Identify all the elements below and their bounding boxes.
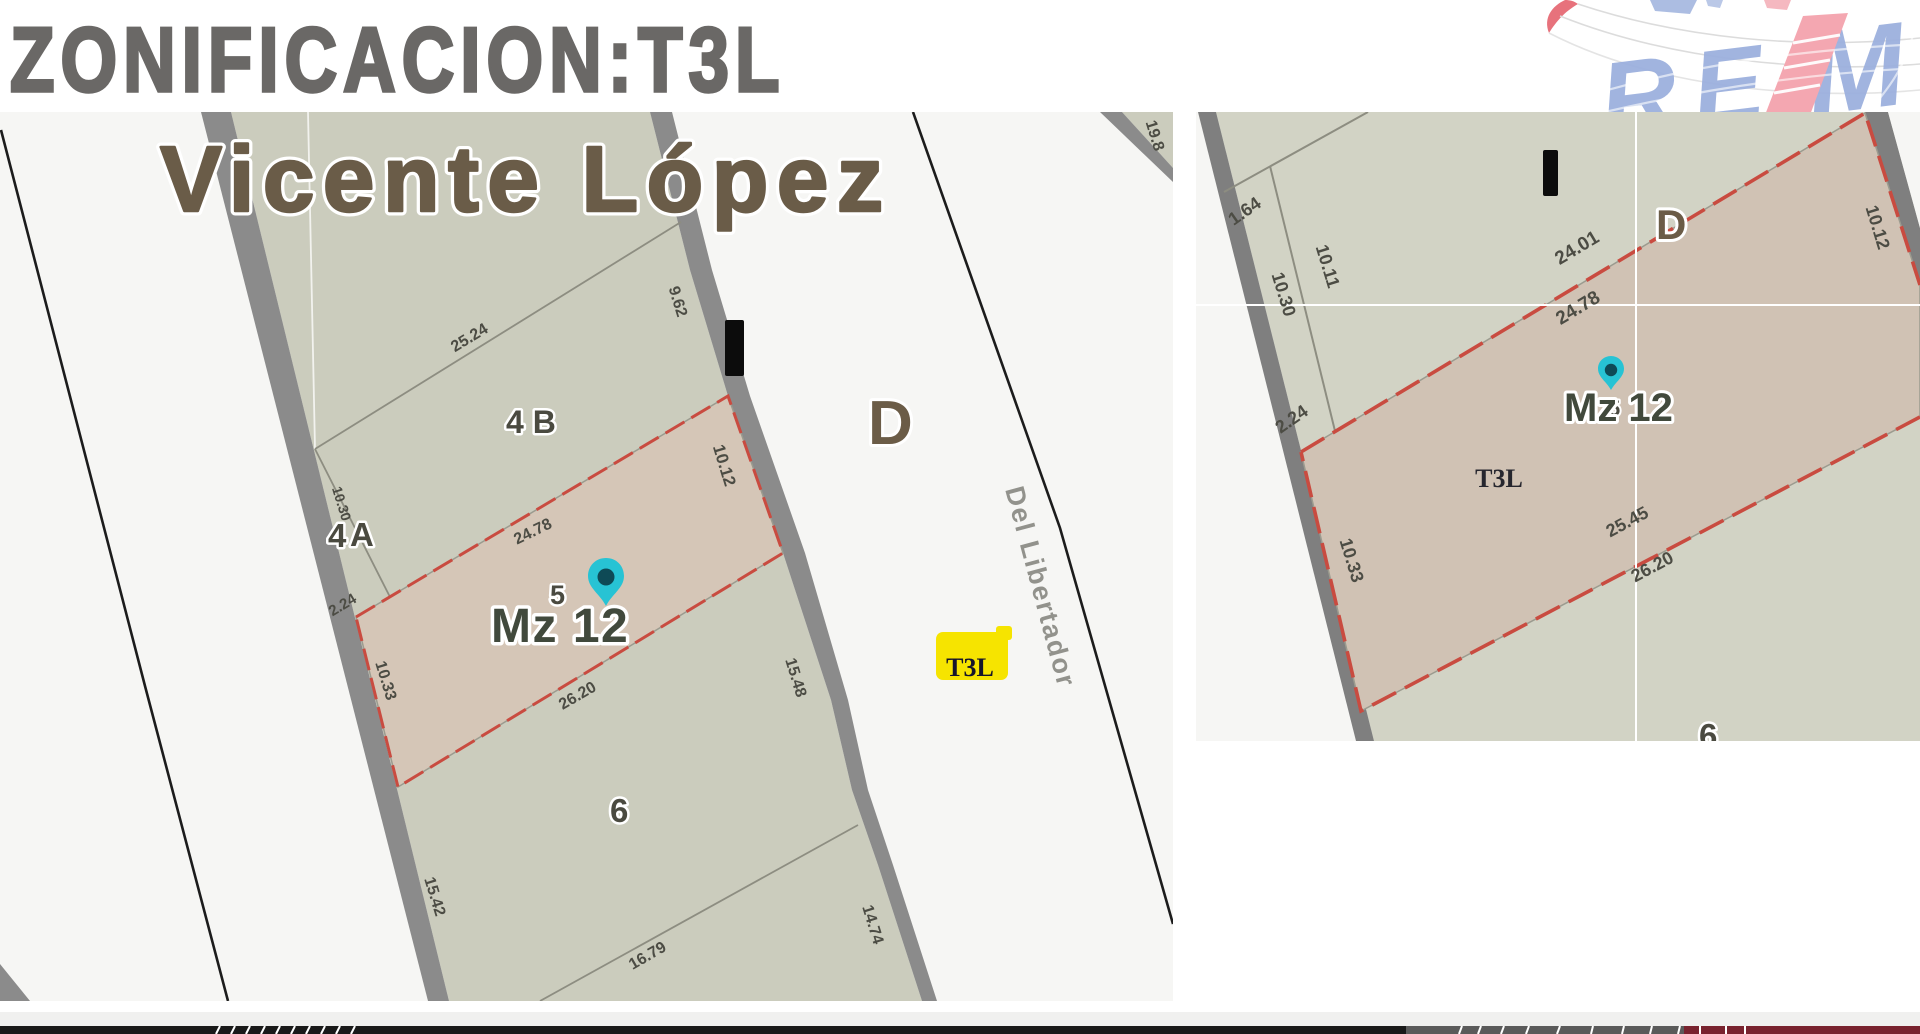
svg-text:4: 4	[328, 517, 347, 554]
svg-text:Vicente López: Vicente López	[160, 127, 892, 231]
svg-text:6: 6	[1699, 717, 1717, 741]
svg-text:T3L: T3L	[1475, 464, 1523, 493]
svg-text:D: D	[868, 389, 913, 458]
svg-text:T3L: T3L	[946, 653, 994, 682]
svg-text:Mz 12: Mz 12	[1564, 386, 1673, 430]
svg-text:Mz 12: Mz 12	[491, 600, 629, 653]
svg-text:E: E	[1686, 23, 1774, 125]
svg-text:A: A	[350, 516, 374, 553]
svg-text:D: D	[1656, 201, 1686, 248]
svg-text:4 B: 4 B	[506, 404, 556, 440]
svg-text:6: 6	[610, 792, 628, 829]
